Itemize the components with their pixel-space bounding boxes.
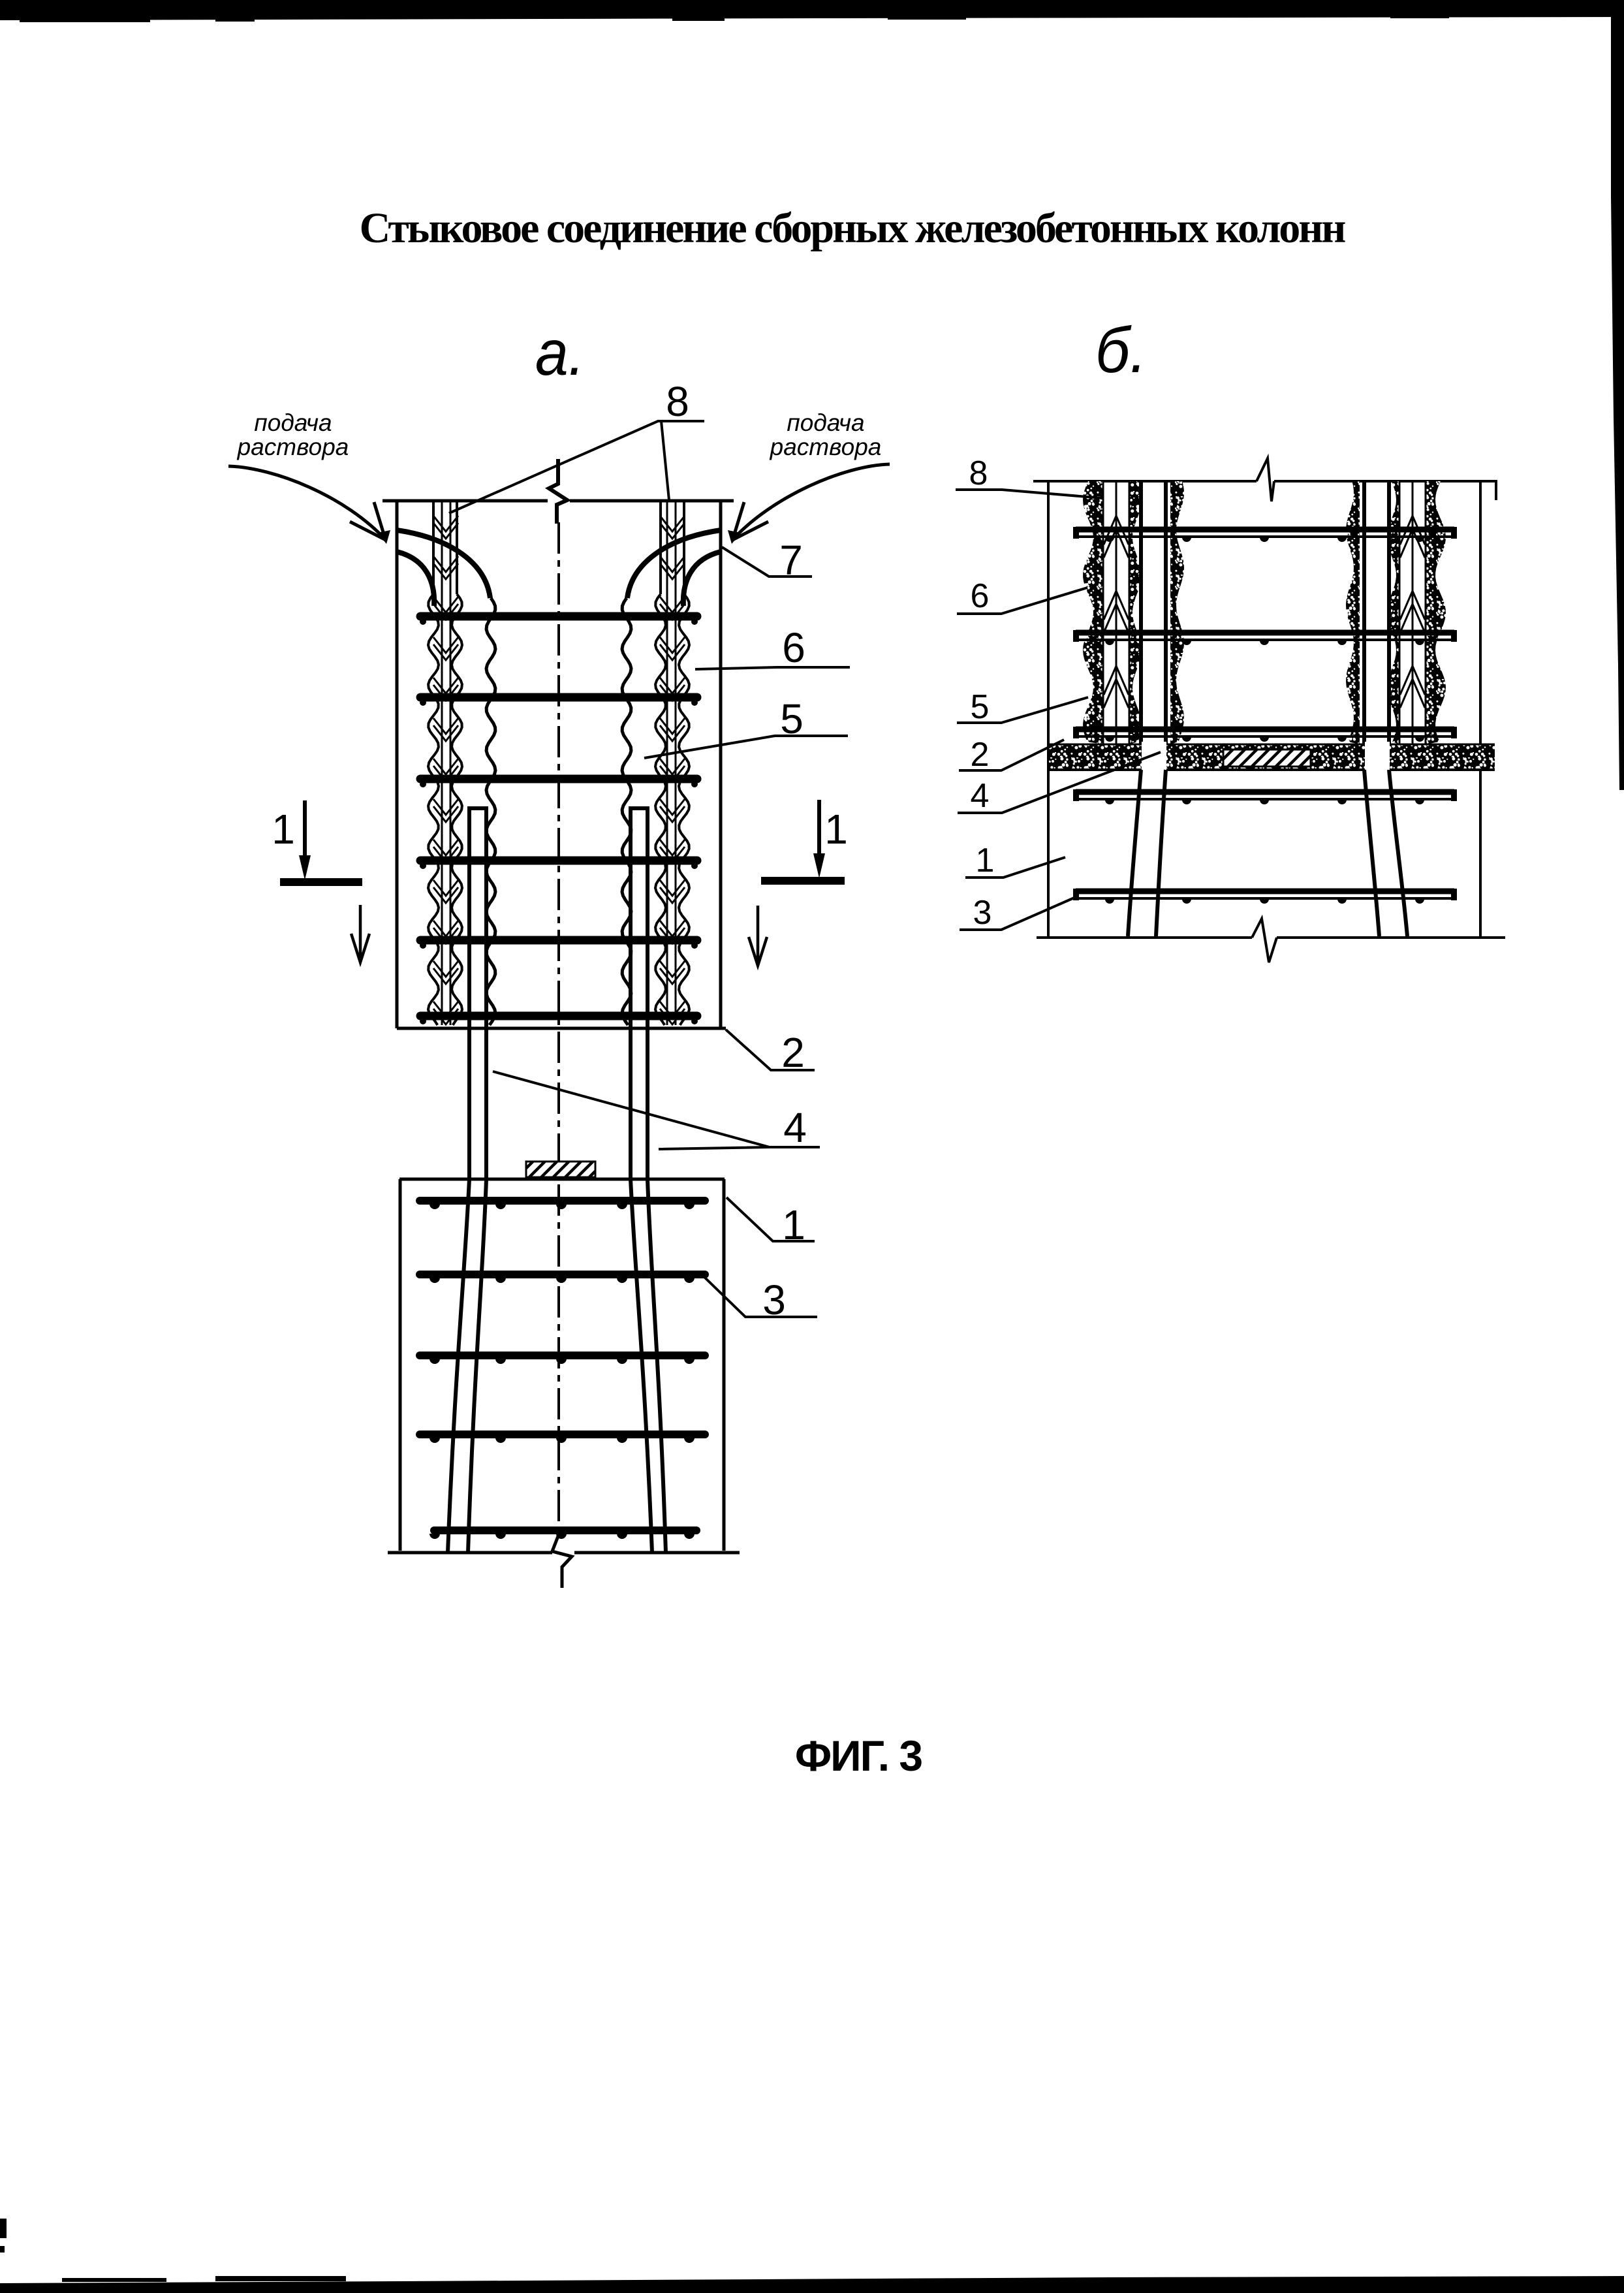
- svg-text:раствора: раствора: [237, 434, 349, 460]
- svg-text:подача: подача: [254, 409, 332, 436]
- svg-text:6: 6: [782, 624, 805, 671]
- svg-text:8: 8: [666, 378, 689, 425]
- svg-text:б.: б.: [1095, 314, 1147, 386]
- svg-text:1: 1: [976, 842, 995, 879]
- svg-text:1: 1: [824, 806, 848, 853]
- svg-text:6: 6: [971, 577, 990, 615]
- svg-text:1: 1: [272, 806, 295, 853]
- svg-text:2: 2: [971, 736, 990, 774]
- svg-text:5: 5: [971, 688, 990, 726]
- svg-text:подача: подача: [787, 409, 864, 436]
- svg-text:4: 4: [783, 1104, 807, 1151]
- svg-text:ФИГ. 3: ФИГ. 3: [795, 1732, 922, 1780]
- svg-text:8: 8: [969, 454, 988, 492]
- svg-text:а.: а.: [535, 317, 585, 388]
- svg-text:4: 4: [971, 777, 990, 815]
- svg-text:Стыковое соединение сборных же: Стыковое соединение сборных железобетонн…: [360, 204, 1346, 252]
- svg-text:раствора: раствора: [770, 434, 882, 460]
- svg-text:3: 3: [973, 894, 992, 932]
